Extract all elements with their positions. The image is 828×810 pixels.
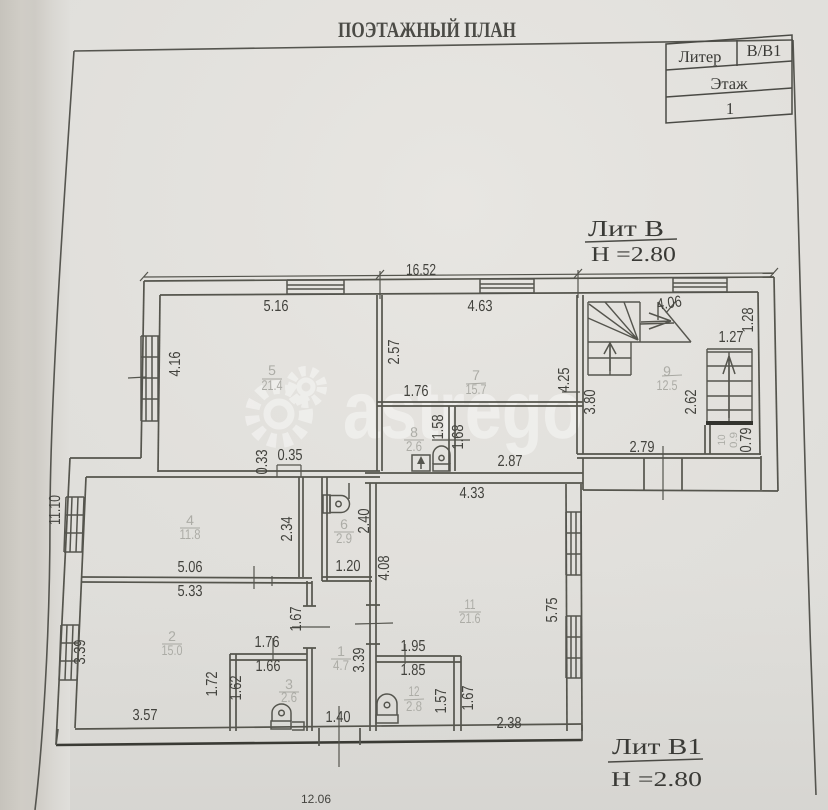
svg-text:16.52: 16.52 — [406, 262, 436, 279]
svg-text:1.58: 1.58 — [430, 414, 447, 439]
svg-text:1.20: 1.20 — [336, 558, 361, 575]
svg-text:5.75: 5.75 — [544, 597, 561, 622]
svg-text:4.63: 4.63 — [468, 298, 493, 315]
svg-text:2.34: 2.34 — [279, 516, 296, 541]
svg-text:3.39: 3.39 — [351, 647, 368, 672]
svg-text:0.35: 0.35 — [278, 447, 303, 464]
svg-text:2.6: 2.6 — [281, 689, 297, 705]
svg-text:1.27: 1.27 — [719, 329, 744, 346]
svg-text:В/В1: В/В1 — [747, 41, 782, 60]
svg-text:2.87: 2.87 — [498, 453, 523, 470]
svg-text:11.10: 11.10 — [47, 495, 64, 525]
svg-text:2.40: 2.40 — [356, 508, 373, 533]
svg-text:1.68: 1.68 — [450, 424, 467, 449]
svg-text:4.06: 4.06 — [656, 293, 683, 313]
svg-text:1: 1 — [726, 99, 734, 118]
svg-text:5.06: 5.06 — [178, 559, 203, 576]
svg-text:0.33: 0.33 — [254, 449, 271, 474]
svg-text:5.16: 5.16 — [264, 298, 289, 315]
svg-text:4.08: 4.08 — [376, 555, 393, 580]
svg-text:1.62: 1.62 — [228, 675, 245, 700]
svg-text:Лит В1: Лит В1 — [612, 734, 702, 759]
svg-text:1.66: 1.66 — [256, 658, 281, 675]
svg-text:2.8: 2.8 — [406, 698, 422, 714]
svg-text:1.72: 1.72 — [204, 671, 221, 696]
svg-text:12.06: 12.06 — [301, 792, 331, 806]
svg-text:2.38: 2.38 — [497, 715, 522, 732]
svg-text:4.33: 4.33 — [460, 485, 485, 502]
svg-text:1.95: 1.95 — [401, 638, 426, 655]
svg-text:1.67: 1.67 — [288, 606, 305, 631]
svg-text:1.85: 1.85 — [401, 662, 426, 679]
svg-text:1.57: 1.57 — [433, 688, 450, 713]
svg-text:0.79: 0.79 — [738, 427, 755, 452]
svg-text:1.67: 1.67 — [460, 685, 477, 710]
svg-text:10: 10 — [716, 434, 728, 445]
svg-text:3.80: 3.80 — [582, 389, 599, 414]
svg-text:12: 12 — [409, 683, 420, 699]
svg-text:Этаж: Этаж — [710, 74, 748, 93]
svg-text:2.79: 2.79 — [630, 439, 655, 456]
svg-text:1.76: 1.76 — [255, 634, 280, 651]
svg-text:ПОЭТАЖНЫЙ ПЛАН: ПОЭТАЖНЫЙ ПЛАН — [338, 17, 516, 42]
svg-text:5.33: 5.33 — [178, 583, 203, 600]
svg-text:2.62: 2.62 — [683, 389, 700, 414]
svg-text:2.57: 2.57 — [386, 339, 403, 364]
svg-text:4.25: 4.25 — [556, 367, 573, 392]
svg-text:Н =2.80: Н =2.80 — [611, 767, 702, 791]
svg-text:Лит В: Лит В — [588, 216, 664, 241]
svg-text:Литер: Литер — [679, 47, 722, 66]
svg-text:Н =2.80: Н =2.80 — [591, 242, 676, 266]
svg-text:1.40: 1.40 — [326, 709, 351, 726]
svg-text:5: 5 — [268, 362, 276, 378]
svg-text:3.39: 3.39 — [72, 639, 89, 664]
svg-text:4.16: 4.16 — [167, 351, 184, 376]
svg-text:3.57: 3.57 — [133, 707, 158, 724]
svg-text:1.76: 1.76 — [404, 383, 429, 400]
svg-text:12.5: 12.5 — [657, 377, 678, 393]
svg-text:0.9: 0.9 — [728, 432, 740, 448]
